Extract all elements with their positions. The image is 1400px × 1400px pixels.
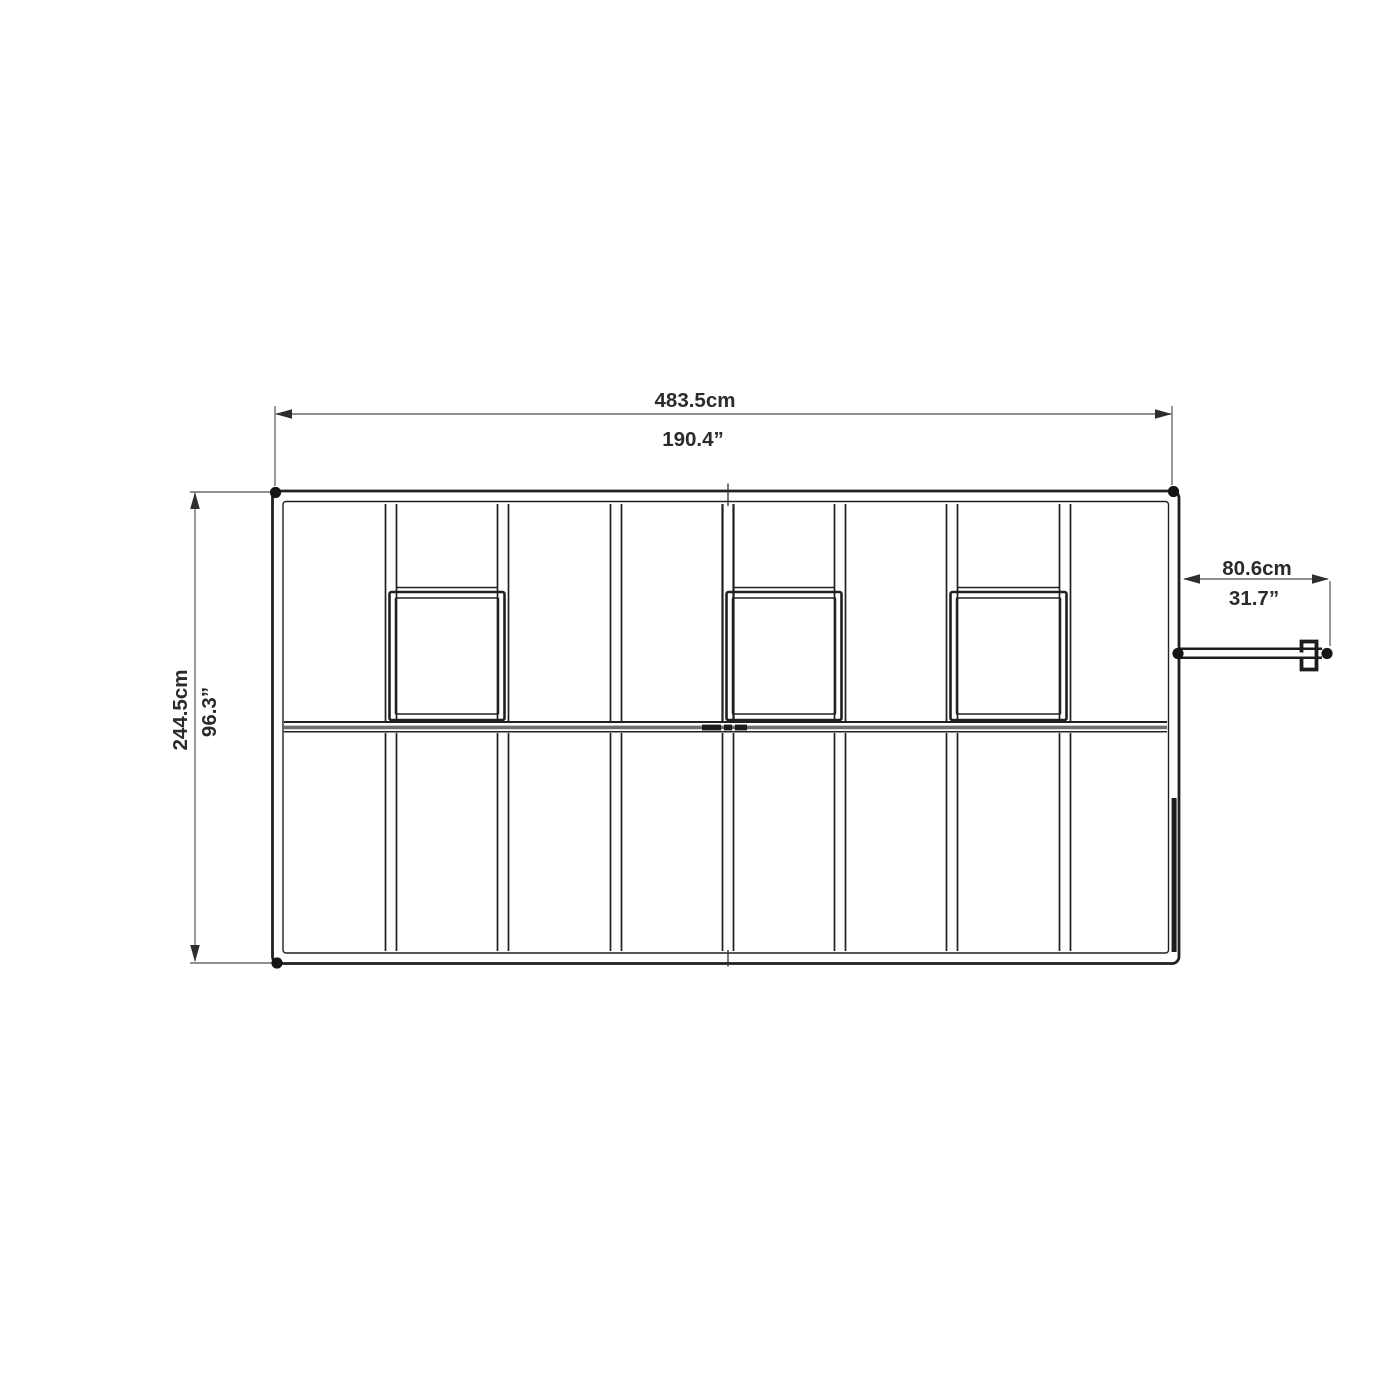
corner-marker-top-right: [1168, 486, 1179, 497]
door-edge: [1172, 798, 1177, 952]
arrowhead-right-icon: [1312, 574, 1329, 584]
roof-mullion-center-bottom: [723, 733, 734, 951]
vent-outer-frame: [951, 592, 1067, 720]
corner-marker-bottom-left: [271, 957, 282, 968]
drawing-canvas: 483.5cm 190.4” 244.5cm 96.3” 80.6cm 31.7…: [0, 0, 1400, 1400]
arrowhead-left-icon: [275, 409, 292, 419]
width-dimension: 483.5cm 190.4”: [275, 389, 1172, 486]
arrowhead-left-icon: [1183, 574, 1200, 584]
roof-vent: [951, 588, 1067, 721]
door-assembly: [1172, 642, 1333, 953]
depth-imperial-label: 96.3”: [198, 687, 221, 737]
width-imperial-label: 190.4”: [662, 428, 724, 451]
arrowhead-right-icon: [1155, 409, 1172, 419]
roof-vents: [390, 588, 1067, 721]
ridge-hardware-tick: [702, 725, 721, 731]
arrowhead-up-icon: [190, 492, 200, 509]
ridge-hardware-tick: [735, 725, 747, 731]
depth-metric-label: 244.5cm: [169, 670, 192, 751]
door-imperial-label: 31.7”: [1229, 587, 1279, 610]
depth-dimension: 244.5cm 96.3”: [169, 492, 272, 963]
door-hinge-marker: [1321, 648, 1332, 659]
roof-vent: [727, 588, 842, 721]
door-metric-label: 80.6cm: [1222, 557, 1292, 580]
arrowhead-down-icon: [190, 945, 200, 962]
vent-inner-frame: [733, 598, 836, 714]
greenhouse-top-view-diagram: 483.5cm 190.4” 244.5cm 96.3” 80.6cm 31.7…: [0, 0, 1400, 1400]
door-dimension: 80.6cm 31.7”: [1183, 557, 1330, 646]
ridge-beam: [284, 722, 1167, 732]
vent-inner-frame: [396, 598, 499, 714]
ridge-hardware-tick: [724, 725, 732, 731]
vent-outer-frame: [727, 592, 842, 720]
door-handle-bracket: [1302, 642, 1317, 670]
vent-inner-frame: [957, 598, 1061, 714]
width-metric-label: 483.5cm: [655, 389, 736, 412]
vent-outer-frame: [390, 592, 505, 720]
door-hinge-marker: [1172, 648, 1183, 659]
roof-vent: [390, 588, 505, 721]
corner-marker-top-left: [270, 487, 281, 498]
